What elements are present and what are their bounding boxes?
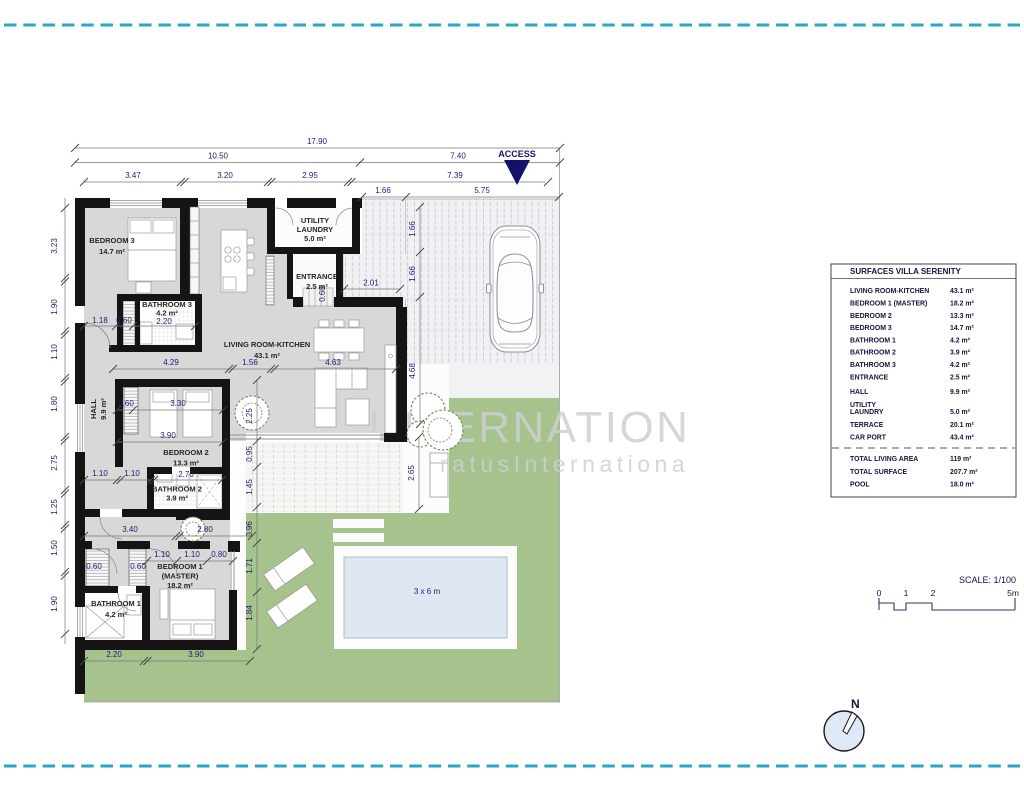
svg-text:2.70: 2.70	[178, 470, 194, 479]
svg-text:2.75: 2.75	[50, 455, 59, 471]
svg-text:1.10: 1.10	[92, 469, 108, 478]
svg-text:1.90: 1.90	[50, 596, 59, 612]
svg-text:4.2 m²: 4.2 m²	[950, 338, 971, 345]
svg-text:UTILITY: UTILITY	[850, 402, 876, 409]
svg-text:SURFACES VILLA SERENITY: SURFACES VILLA SERENITY	[850, 267, 961, 276]
svg-text:LAUNDRY: LAUNDRY	[850, 409, 884, 416]
svg-text:HALL: HALL	[89, 399, 98, 419]
svg-text:HALL: HALL	[850, 389, 868, 396]
svg-text:10.50: 10.50	[208, 152, 229, 161]
svg-text:1: 1	[904, 588, 909, 598]
svg-text:7.40: 7.40	[450, 152, 466, 161]
svg-text:5.0 m²: 5.0 m²	[950, 409, 971, 416]
svg-text:13.3 m²: 13.3 m²	[173, 459, 199, 468]
svg-text:1.25: 1.25	[50, 499, 59, 515]
svg-text:1.45: 1.45	[245, 479, 254, 495]
svg-text:3.90: 3.90	[188, 650, 204, 659]
svg-text:BATHROOM 2: BATHROOM 2	[152, 485, 202, 494]
svg-text:POOL: POOL	[850, 482, 870, 489]
svg-text:BEDROOM 1 (MASTER): BEDROOM 1 (MASTER)	[850, 301, 927, 308]
svg-text:3 x 6 m: 3 x 6 m	[414, 587, 441, 596]
svg-text:BEDROOM 2: BEDROOM 2	[163, 448, 208, 457]
svg-text:2.20: 2.20	[156, 317, 172, 326]
svg-text:1.71: 1.71	[245, 558, 254, 574]
svg-text:0.60: 0.60	[86, 562, 102, 571]
svg-text:0.60: 0.60	[116, 316, 132, 325]
svg-text:BEDROOM 2: BEDROOM 2	[850, 313, 892, 320]
svg-text:3.9 m²: 3.9 m²	[950, 350, 971, 357]
svg-text:ENTRANCE: ENTRANCE	[850, 375, 889, 382]
svg-text:18.2 m²: 18.2 m²	[950, 301, 974, 308]
svg-text:9.9 m²: 9.9 m²	[99, 398, 108, 420]
svg-text:3.30: 3.30	[170, 399, 186, 408]
svg-text:TOTAL SURFACE: TOTAL SURFACE	[850, 469, 907, 476]
svg-text:4.2 m²: 4.2 m²	[156, 309, 178, 318]
svg-text:0.95: 0.95	[245, 446, 254, 462]
svg-text:BATHROOM 1: BATHROOM 1	[91, 599, 141, 608]
svg-text:SCALE: 1/100: SCALE: 1/100	[959, 575, 1016, 585]
svg-text:18.0 m²: 18.0 m²	[950, 482, 974, 489]
svg-text:1.10: 1.10	[184, 550, 200, 559]
svg-text:5.75: 5.75	[474, 186, 490, 195]
svg-text:BEDROOM 1: BEDROOM 1	[157, 562, 202, 571]
svg-text:BEDROOM 3: BEDROOM 3	[89, 236, 134, 245]
svg-text:7.39: 7.39	[447, 171, 463, 180]
svg-text:14.7 m²: 14.7 m²	[950, 325, 974, 332]
svg-text:1.90: 1.90	[50, 299, 59, 315]
svg-text:ACCESS: ACCESS	[498, 149, 536, 159]
svg-text:4.2 m²: 4.2 m²	[950, 362, 971, 369]
svg-text:43.1 m²: 43.1 m²	[254, 351, 280, 360]
svg-text:3.47: 3.47	[125, 171, 141, 180]
svg-text:3.23: 3.23	[50, 238, 59, 254]
svg-text:2.65: 2.65	[407, 465, 416, 481]
svg-text:1.84: 1.84	[245, 605, 254, 621]
svg-text:14.7 m²: 14.7 m²	[99, 247, 125, 256]
svg-text:BATHROOM 1: BATHROOM 1	[850, 338, 896, 345]
svg-text:4.68: 4.68	[408, 363, 417, 379]
svg-text:0.80: 0.80	[211, 550, 227, 559]
svg-text:3.9 m²: 3.9 m²	[166, 494, 188, 503]
svg-text:9.9 m²: 9.9 m²	[950, 389, 971, 396]
svg-text:18.2 m²: 18.2 m²	[167, 581, 193, 590]
svg-text:43.4 m²: 43.4 m²	[950, 435, 974, 442]
svg-text:119 m²: 119 m²	[950, 456, 972, 463]
svg-text:(MASTER): (MASTER)	[162, 572, 199, 581]
svg-text:3.40: 3.40	[122, 525, 138, 534]
svg-text:5m: 5m	[1007, 588, 1019, 598]
svg-text:TERRACE: TERRACE	[850, 422, 884, 429]
svg-text:0: 0	[877, 588, 882, 598]
svg-text:BATHROOM 3: BATHROOM 3	[850, 362, 896, 369]
svg-text:4.63: 4.63	[325, 358, 341, 367]
svg-text:1.50: 1.50	[50, 540, 59, 556]
svg-text:2.01: 2.01	[363, 279, 379, 288]
svg-text:1.18: 1.18	[92, 316, 108, 325]
svg-text:ratusInternationa: ratusInternationa	[440, 451, 689, 477]
svg-text:UTILITY: UTILITY	[301, 216, 329, 225]
svg-text:3.20: 3.20	[217, 171, 233, 180]
svg-text:4.29: 4.29	[163, 358, 179, 367]
svg-text:1.10: 1.10	[154, 550, 170, 559]
svg-text:1.10: 1.10	[50, 344, 59, 360]
svg-text:1.66: 1.66	[408, 221, 417, 237]
svg-text:1.66: 1.66	[408, 266, 417, 282]
svg-text:LIVING ROOM-KITCHEN: LIVING ROOM-KITCHEN	[224, 340, 310, 349]
svg-text:2.80: 2.80	[197, 525, 213, 534]
svg-text:LIVING ROOM-KITCHEN: LIVING ROOM-KITCHEN	[850, 288, 929, 295]
svg-text:2.95: 2.95	[302, 171, 318, 180]
svg-text:207.7 m²: 207.7 m²	[950, 469, 978, 476]
svg-text:13.3 m²: 13.3 m²	[950, 313, 974, 320]
svg-text:CAR PORT: CAR PORT	[850, 435, 887, 442]
svg-text:5.0 m²: 5.0 m²	[304, 234, 326, 243]
svg-text:0.96: 0.96	[245, 521, 254, 537]
svg-text:3.90: 3.90	[160, 431, 176, 440]
svg-text:2: 2	[931, 588, 936, 598]
svg-text:2.5 m²: 2.5 m²	[306, 282, 328, 291]
svg-text:1.10: 1.10	[124, 469, 140, 478]
svg-text:1.80: 1.80	[50, 396, 59, 412]
svg-text:2.5 m²: 2.5 m²	[950, 375, 971, 382]
svg-text:ENTRANCE: ENTRANCE	[296, 272, 338, 281]
svg-text:LAUNDRY: LAUNDRY	[297, 225, 333, 234]
svg-text:17.90: 17.90	[307, 137, 328, 146]
svg-text:2.25: 2.25	[245, 408, 254, 424]
svg-text:1.66: 1.66	[375, 186, 391, 195]
svg-text:2.20: 2.20	[106, 650, 122, 659]
svg-text:BEDROOM 3: BEDROOM 3	[850, 325, 892, 332]
svg-text:20.1 m²: 20.1 m²	[950, 422, 974, 429]
svg-text:BATHROOM 2: BATHROOM 2	[850, 350, 896, 357]
svg-text:TOTAL LIVING AREA: TOTAL LIVING AREA	[850, 456, 918, 463]
svg-text:4.2 m²: 4.2 m²	[105, 610, 127, 619]
svg-text:N: N	[851, 697, 860, 711]
svg-text:0.60: 0.60	[118, 399, 134, 408]
svg-text:0.60: 0.60	[130, 562, 146, 571]
svg-text:43.1 m²: 43.1 m²	[950, 288, 974, 295]
